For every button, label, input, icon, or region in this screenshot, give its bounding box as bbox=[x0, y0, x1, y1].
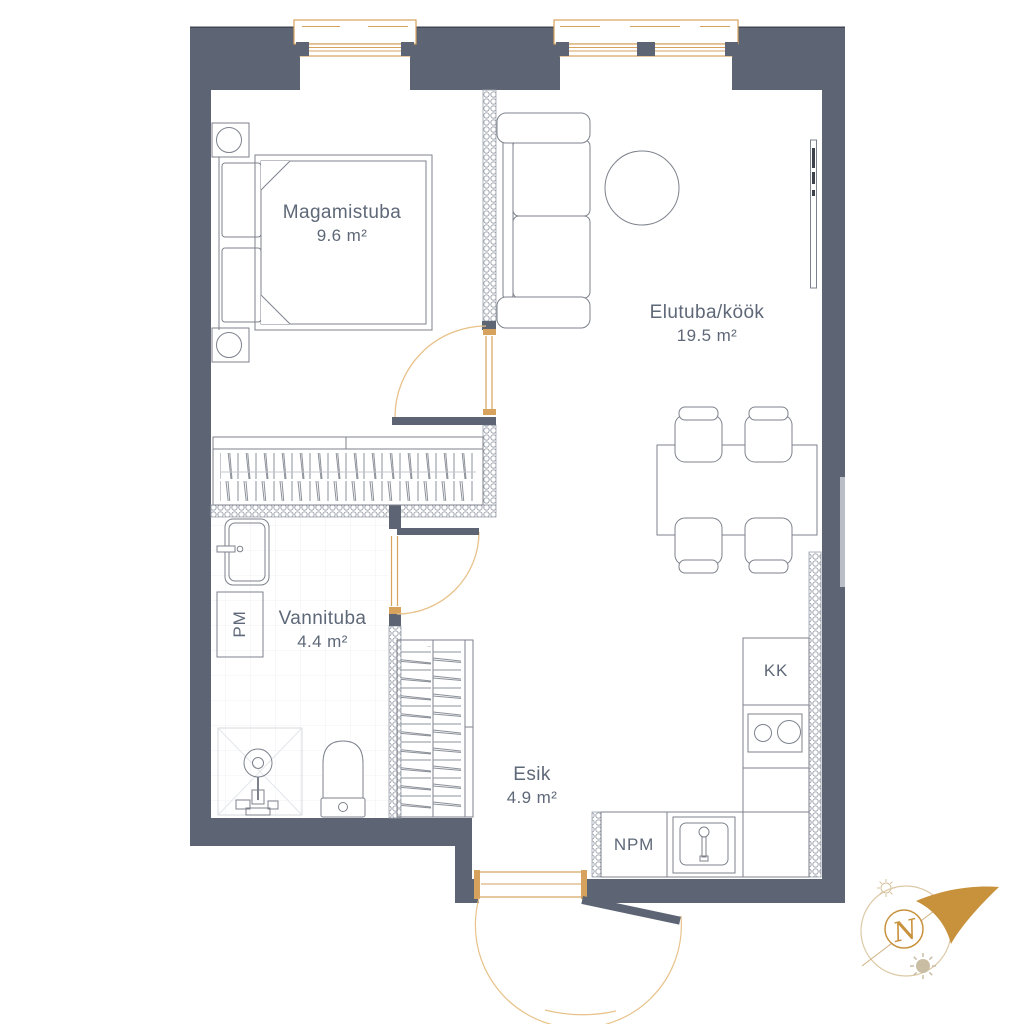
kitchen-sink bbox=[673, 817, 735, 873]
kitchen bbox=[601, 638, 809, 877]
tv bbox=[811, 140, 817, 288]
floorplan-drawing: N bbox=[0, 0, 1024, 1024]
partition-wardrobe-side bbox=[483, 425, 496, 505]
partition-bathroom-east bbox=[389, 626, 401, 818]
dining-set bbox=[657, 407, 817, 573]
door-bedroom bbox=[392, 326, 496, 425]
partition-kitchen-strip bbox=[809, 552, 821, 877]
window-living bbox=[554, 20, 738, 56]
door-bedroom-arc bbox=[395, 326, 486, 417]
door-entrance-arc2 bbox=[545, 1010, 616, 1015]
floor-plan-page: N Magamistuba 9.6 m² Elutuba/köök 19.5 m… bbox=[0, 0, 1024, 1024]
dining-chair bbox=[675, 407, 722, 462]
sun-icon-filled bbox=[910, 953, 936, 979]
block-bath-door-top bbox=[389, 505, 401, 529]
wardrobe-hallway bbox=[397, 640, 473, 817]
partition-bedroom-living bbox=[483, 90, 496, 321]
sun-icon-outline bbox=[877, 879, 895, 897]
dining-chair bbox=[745, 407, 792, 462]
kitchen-counter-vertical bbox=[743, 638, 809, 812]
toilet bbox=[321, 741, 365, 817]
wall-right-recess bbox=[840, 477, 845, 587]
wall-bottom-right bbox=[583, 879, 822, 903]
wall-right bbox=[822, 28, 845, 903]
wall-left bbox=[190, 28, 211, 846]
bed bbox=[219, 155, 432, 330]
wall-step bbox=[455, 846, 472, 903]
compass: N bbox=[861, 879, 999, 979]
wardrobe-bedroom bbox=[213, 437, 483, 505]
partition-counter-strip bbox=[592, 812, 601, 877]
bedroom-furniture bbox=[212, 123, 483, 505]
door-bathroom-leaf bbox=[397, 528, 479, 535]
wall-bath-bottom bbox=[190, 818, 472, 846]
door-bathroom bbox=[389, 528, 479, 614]
partition-bathroom-north bbox=[211, 505, 496, 517]
dining-chair bbox=[675, 518, 722, 573]
coffee-table bbox=[605, 151, 679, 225]
nightstand-bottom bbox=[212, 328, 249, 362]
door-bedroom-leaf bbox=[392, 417, 496, 425]
door-bathroom-arc bbox=[397, 532, 479, 614]
sofa bbox=[497, 113, 590, 328]
block-bath-door-bottom bbox=[389, 614, 401, 626]
wall-top-mid bbox=[410, 28, 560, 90]
window-bedroom bbox=[294, 20, 416, 56]
living-furniture bbox=[497, 113, 817, 573]
dining-chair bbox=[745, 518, 792, 573]
nightstand-top bbox=[212, 123, 249, 157]
hob bbox=[748, 714, 802, 752]
